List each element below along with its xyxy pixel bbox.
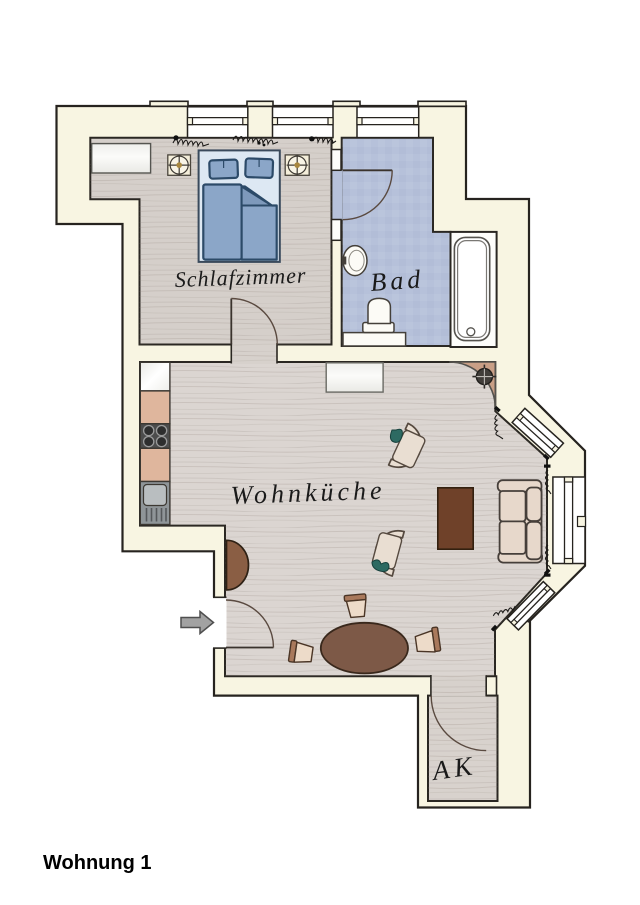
svg-text:Schlafzimmer: Schlafzimmer <box>174 262 307 292</box>
svg-text:Bad: Bad <box>369 264 425 297</box>
svg-text:Wohnung 1: Wohnung 1 <box>43 852 152 874</box>
svg-text:AK: AK <box>429 750 479 786</box>
svg-text:Wohnküche: Wohnküche <box>230 476 386 510</box>
